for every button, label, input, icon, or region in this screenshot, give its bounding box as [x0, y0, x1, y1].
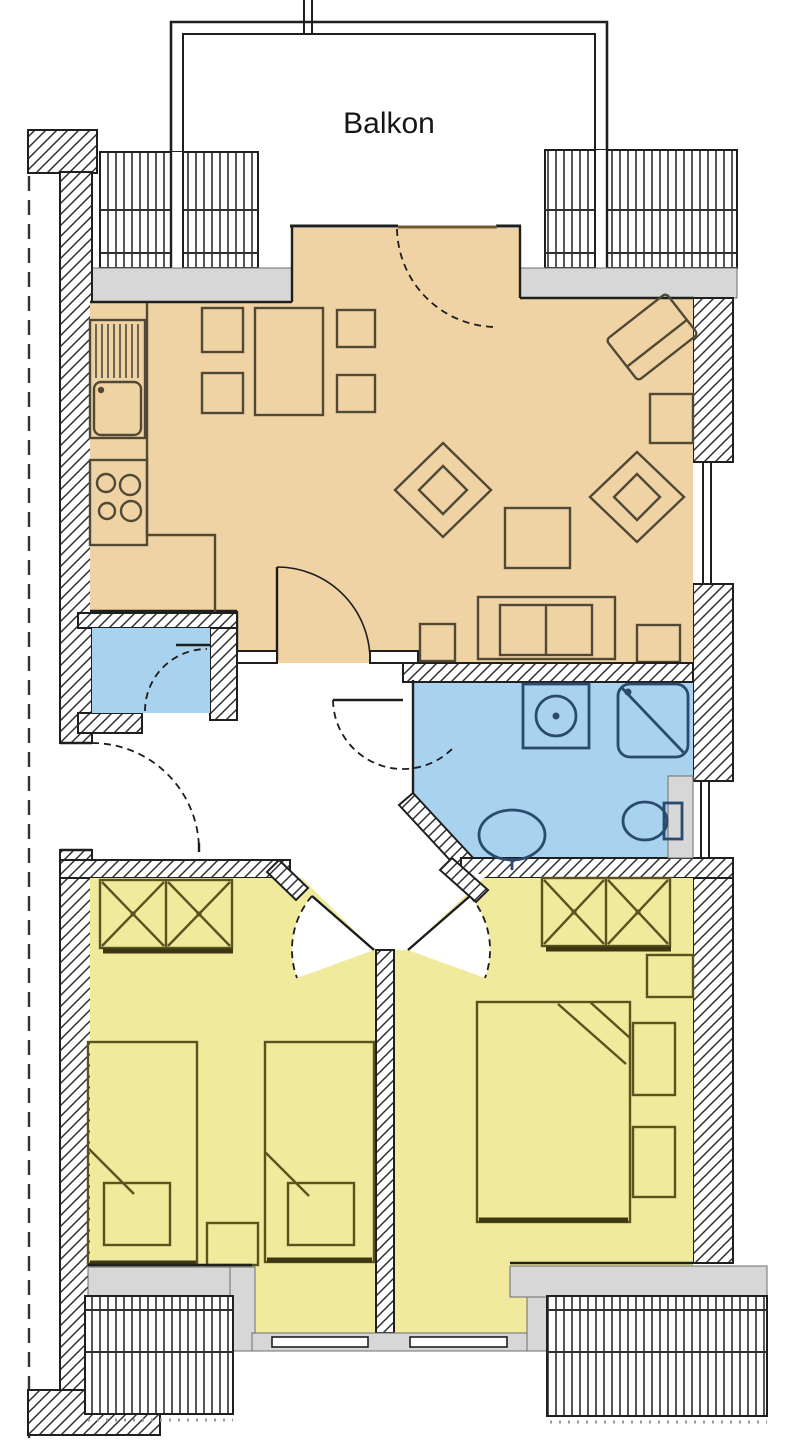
window-bath-right	[693, 781, 733, 860]
wc-floor	[92, 628, 210, 713]
balcony-edge-casing-right	[596, 150, 606, 268]
floor-plan-page: Balkon	[0, 0, 789, 1440]
wall-right-lower	[693, 860, 733, 1263]
window-niche	[668, 776, 693, 858]
bedroom-wall-top-left	[60, 860, 290, 878]
washing-machine-dot	[553, 713, 560, 720]
wardrobe-knob	[635, 909, 640, 914]
wall-right-upper	[693, 298, 733, 462]
bedrooms	[60, 858, 767, 1422]
floor-plan: Balkon	[0, 0, 789, 1440]
sill-corner-right	[527, 1297, 547, 1351]
wardrobe-knob	[571, 909, 576, 914]
wc-wall-right	[210, 628, 237, 720]
wall-top-left-bar	[28, 130, 97, 173]
hall-thin-wall	[370, 651, 418, 663]
railing-bottom-right	[547, 1296, 767, 1416]
bathroom-wall-bottom	[461, 858, 733, 878]
window-sill-top-right	[520, 268, 737, 298]
wardrobe-knob	[130, 911, 135, 916]
wc-room	[78, 613, 237, 733]
wc-wall-top	[78, 613, 237, 628]
bottom-window	[272, 1337, 368, 1347]
window-sill-top-left	[92, 268, 292, 302]
bottom-window	[410, 1337, 507, 1347]
window-living-right	[693, 462, 733, 584]
kitchen-tap-dot	[98, 387, 104, 393]
wc-wall-bottom	[78, 713, 142, 733]
railing-bottom-left	[85, 1296, 233, 1414]
window-sill-bottom-right	[510, 1266, 767, 1297]
wall-right-middle	[693, 584, 733, 781]
bathroom-floor	[413, 680, 693, 860]
balcony-label: Balkon	[343, 107, 435, 140]
wardrobe-knob	[196, 911, 201, 916]
bedroom-divider-wall	[376, 950, 394, 1333]
bathroom-wall-top	[403, 663, 693, 682]
wall-left-upper	[60, 172, 92, 743]
shower-drain-dot	[625, 689, 632, 696]
balcony-edge-casing-left	[172, 152, 182, 268]
hall-thin-wall	[237, 651, 277, 663]
bathroom	[333, 663, 733, 878]
entry-door-arc	[92, 743, 199, 850]
